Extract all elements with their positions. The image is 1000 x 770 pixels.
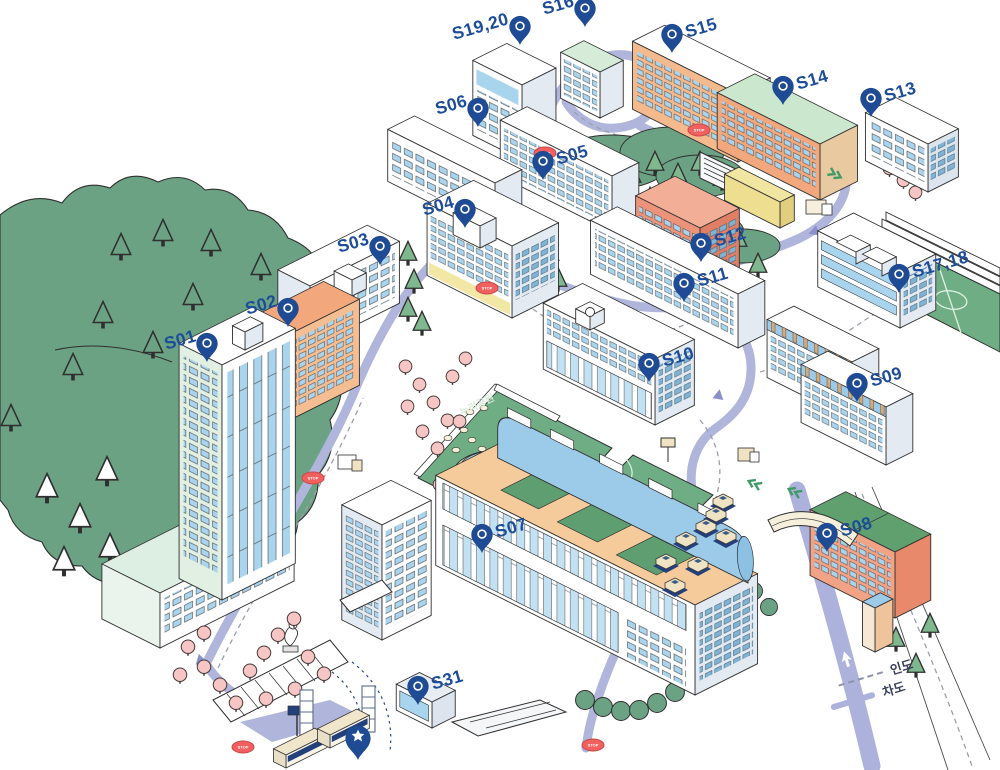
markers-layer: S01 S02 S03 S04 xyxy=(0,0,1000,770)
map-pin-icon xyxy=(858,84,884,117)
marker-label: S13 xyxy=(882,77,919,106)
map-pin-icon xyxy=(343,721,374,760)
map-pin-icon xyxy=(405,672,431,705)
map-pin-icon xyxy=(530,147,556,180)
marker-label: S03 xyxy=(334,228,371,257)
marker-label: S01 xyxy=(161,325,198,354)
marker-label: S09 xyxy=(868,362,905,391)
marker-label: S12 xyxy=(712,222,749,251)
marker-label: S02 xyxy=(242,290,279,319)
marker-label: S11 xyxy=(695,263,731,292)
map-pin-icon xyxy=(814,519,840,552)
marker-label: S17,18 xyxy=(910,246,971,282)
marker-label: S08 xyxy=(838,512,875,541)
marker-label: S31 xyxy=(429,665,466,694)
marker-label: S15 xyxy=(683,13,720,42)
map-pin-icon xyxy=(844,369,870,402)
marker-label: S04 xyxy=(419,191,456,220)
map-pin-icon xyxy=(659,20,685,53)
map-pin-icon xyxy=(671,269,697,302)
map-pin-icon xyxy=(886,260,912,293)
map-pin-icon xyxy=(636,349,662,382)
marker-label: S16 xyxy=(539,0,576,20)
marker-label: S10 xyxy=(660,342,697,371)
marker-label: S05 xyxy=(554,140,591,169)
map-pin-icon xyxy=(469,520,495,553)
marker-label: S06 xyxy=(432,90,469,119)
map-pin-icon xyxy=(770,72,796,105)
marker-label: S07 xyxy=(493,513,530,542)
campus-map: 누리공원 xyxy=(0,0,1000,770)
marker-label: S14 xyxy=(794,65,831,94)
marker-label: S19,20 xyxy=(450,8,511,44)
map-pin-icon xyxy=(688,229,714,262)
map-pin-icon xyxy=(572,0,598,27)
